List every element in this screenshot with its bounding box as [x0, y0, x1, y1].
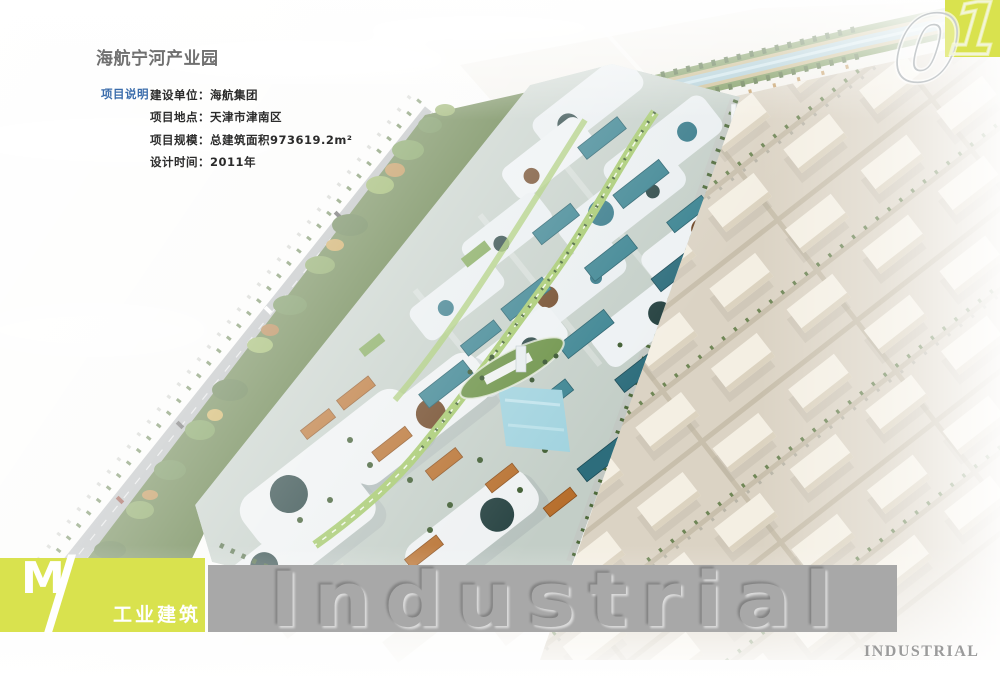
watermark-text: Industrial [270, 555, 846, 644]
section-category-label: 工业建筑 [113, 600, 201, 627]
page-number: 0 0 1 1 [830, 0, 1000, 130]
watermark-band: Industrial [208, 565, 897, 632]
project-info-row-location: 项目地点：天津市津南区 [150, 106, 352, 128]
page-title: 海航宁河产业园 [96, 44, 219, 69]
project-info-row-owner: 建设单位：海航集团 [150, 84, 352, 106]
footer-brand: INDUSTRIAL [864, 643, 979, 661]
project-info-label: 项目说明 [101, 86, 149, 102]
presentation-page: 海航宁河产业园 项目说明 建设单位：海航集团 项目地点：天津市津南区 项目规模：… [0, 0, 1000, 678]
project-info-row-year: 设计时间：2011年 [150, 151, 352, 173]
project-info-row-scale: 项目规模：总建筑面积973619.2m² [150, 129, 352, 151]
slash-divider: / [44, 545, 76, 640]
section-tab: M / 工业建筑 [0, 558, 205, 632]
project-info: 建设单位：海航集团 项目地点：天津市津南区 项目规模：总建筑面积973619.2… [150, 84, 352, 173]
